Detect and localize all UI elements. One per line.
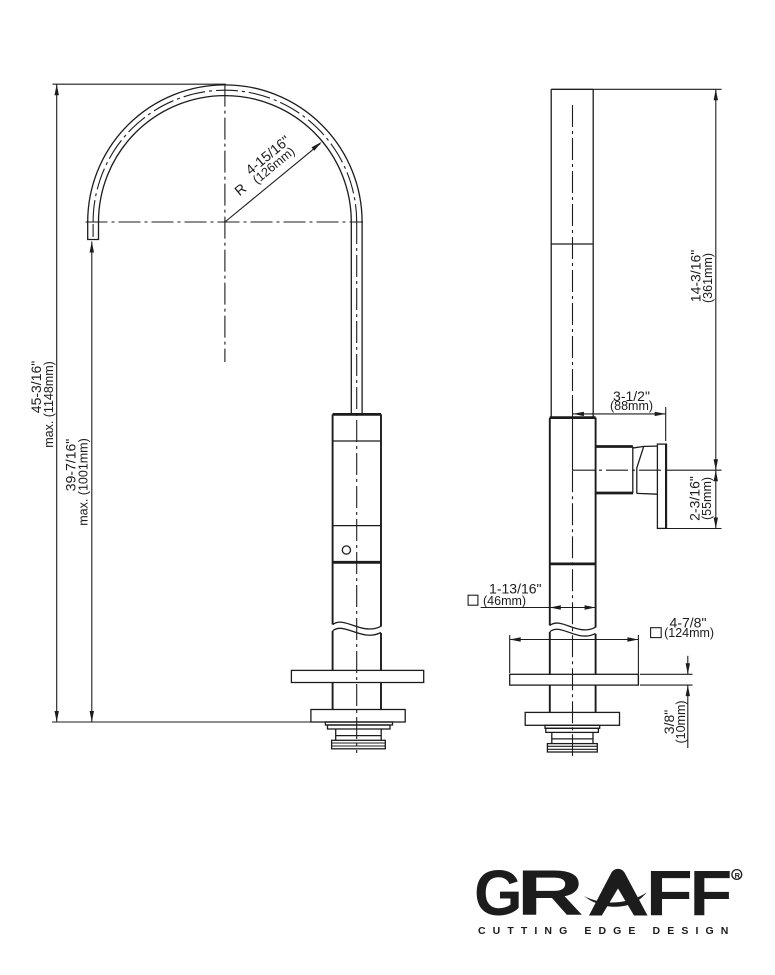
svg-text:R: R [735,871,741,880]
svg-text:F: F [646,858,693,929]
svg-text:(10mm): (10mm) [674,700,688,743]
svg-text:F: F [690,857,733,929]
svg-text:(46mm): (46mm) [483,594,526,608]
svg-text:(124mm): (124mm) [664,626,714,640]
svg-text:max. (1001mm): max. (1001mm) [77,438,91,526]
svg-text:(361mm): (361mm) [701,253,715,303]
svg-text:(88mm): (88mm) [610,399,653,413]
svg-text:G: G [474,858,522,929]
svg-text:R: R [517,857,584,928]
svg-text:CUTTING EDGE DESIGN: CUTTING EDGE DESIGN [478,925,735,937]
svg-text:(55mm): (55mm) [700,477,714,520]
svg-text:max. (1148mm): max. (1148mm) [42,361,56,448]
